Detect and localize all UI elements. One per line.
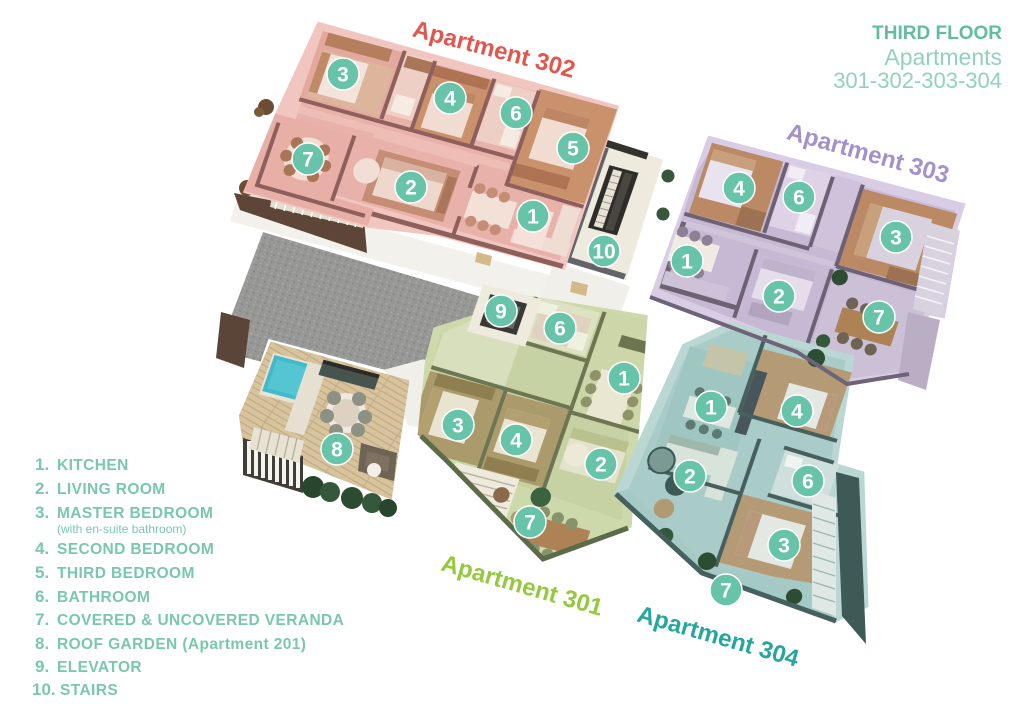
svg-text:301-302-303-304: 301-302-303-304 [833, 68, 1002, 93]
svg-text:7: 7 [302, 149, 314, 172]
svg-text:4: 4 [510, 430, 522, 453]
svg-text:6: 6 [802, 471, 814, 494]
svg-text:6: 6 [554, 318, 566, 341]
svg-text:ELEVATOR: ELEVATOR [57, 659, 142, 676]
svg-text:3: 3 [452, 415, 464, 438]
svg-text:4.: 4. [35, 539, 49, 558]
svg-text:6: 6 [510, 103, 522, 126]
svg-text:THIRD BEDROOM: THIRD BEDROOM [57, 565, 195, 582]
svg-text:8: 8 [331, 439, 343, 462]
svg-text:3: 3 [890, 227, 902, 250]
svg-text:7: 7 [524, 512, 536, 535]
svg-text:1: 1 [705, 397, 717, 420]
svg-text:7: 7 [873, 307, 885, 330]
svg-text:LIVING ROOM: LIVING ROOM [57, 481, 166, 498]
svg-text:1: 1 [681, 251, 693, 274]
svg-text:10.: 10. [32, 680, 56, 699]
svg-text:2: 2 [405, 177, 417, 200]
svg-text:KITCHEN: KITCHEN [57, 457, 129, 474]
svg-text:3: 3 [337, 64, 349, 87]
svg-text:6.: 6. [35, 587, 49, 606]
svg-text:8.: 8. [35, 634, 49, 653]
svg-text:5.: 5. [35, 563, 49, 582]
svg-text:4: 4 [791, 401, 803, 424]
svg-text:7: 7 [720, 580, 732, 603]
svg-text:5: 5 [567, 138, 579, 161]
svg-text:2: 2 [773, 286, 785, 309]
svg-text:ROOF GARDEN (Apartment 201): ROOF GARDEN (Apartment 201) [57, 636, 306, 653]
svg-text:1.: 1. [35, 455, 49, 474]
svg-text:7.: 7. [35, 610, 49, 629]
svg-text:2: 2 [595, 454, 607, 477]
svg-text:Apartments: Apartments [884, 44, 1002, 70]
svg-text:1: 1 [618, 368, 630, 391]
svg-text:1: 1 [527, 206, 539, 229]
svg-text:6: 6 [793, 187, 805, 210]
svg-text:2: 2 [684, 466, 696, 489]
svg-text:3.: 3. [35, 503, 49, 522]
svg-text:BATHROOM: BATHROOM [57, 589, 150, 606]
svg-text:4: 4 [444, 88, 456, 111]
svg-text:10: 10 [592, 241, 615, 264]
svg-text:9: 9 [495, 301, 507, 324]
svg-text:2.: 2. [35, 479, 49, 498]
svg-text:SECOND BEDROOM: SECOND BEDROOM [57, 541, 214, 558]
svg-text:MASTER BEDROOM: MASTER BEDROOM [57, 505, 213, 522]
svg-text:THIRD FLOOR: THIRD FLOOR [872, 23, 1002, 44]
svg-text:COVERED & UNCOVERED VERANDA: COVERED & UNCOVERED VERANDA [57, 612, 344, 629]
svg-text:3: 3 [778, 535, 790, 558]
svg-text:9.: 9. [35, 657, 49, 676]
svg-text:4: 4 [733, 178, 745, 201]
svg-text:STAIRS: STAIRS [60, 682, 118, 699]
svg-text:(with en-suite bathroom): (with en-suite bathroom) [57, 522, 186, 536]
